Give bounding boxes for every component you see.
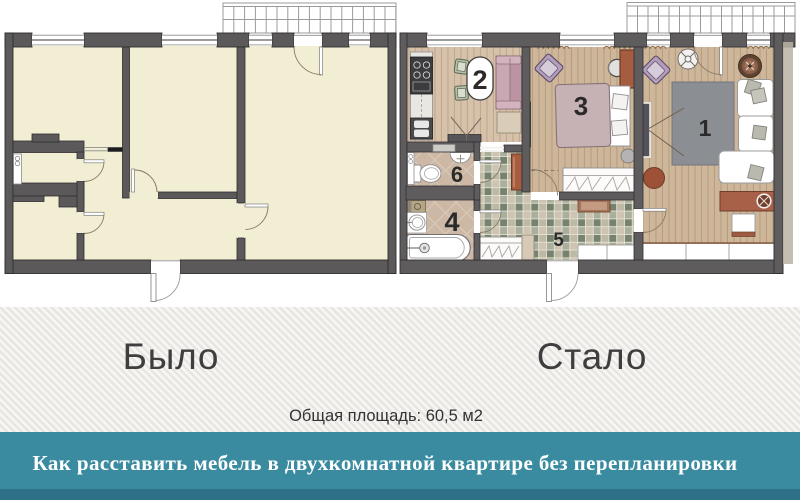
svg-text:6: 6 bbox=[451, 162, 463, 187]
svg-text:Было: Было bbox=[123, 336, 220, 377]
svg-text:5: 5 bbox=[553, 230, 564, 251]
svg-text:1: 1 bbox=[699, 115, 712, 141]
svg-text:Как расставить мебель в двухко: Как расставить мебель в двухкомнатной кв… bbox=[33, 451, 738, 475]
svg-text:4: 4 bbox=[444, 207, 459, 237]
svg-text:2: 2 bbox=[472, 65, 487, 95]
svg-text:3: 3 bbox=[574, 91, 588, 121]
svg-text:Стало: Стало bbox=[537, 336, 647, 377]
svg-text:Общая площадь: 60,5 м2: Общая площадь: 60,5 м2 bbox=[289, 407, 483, 425]
